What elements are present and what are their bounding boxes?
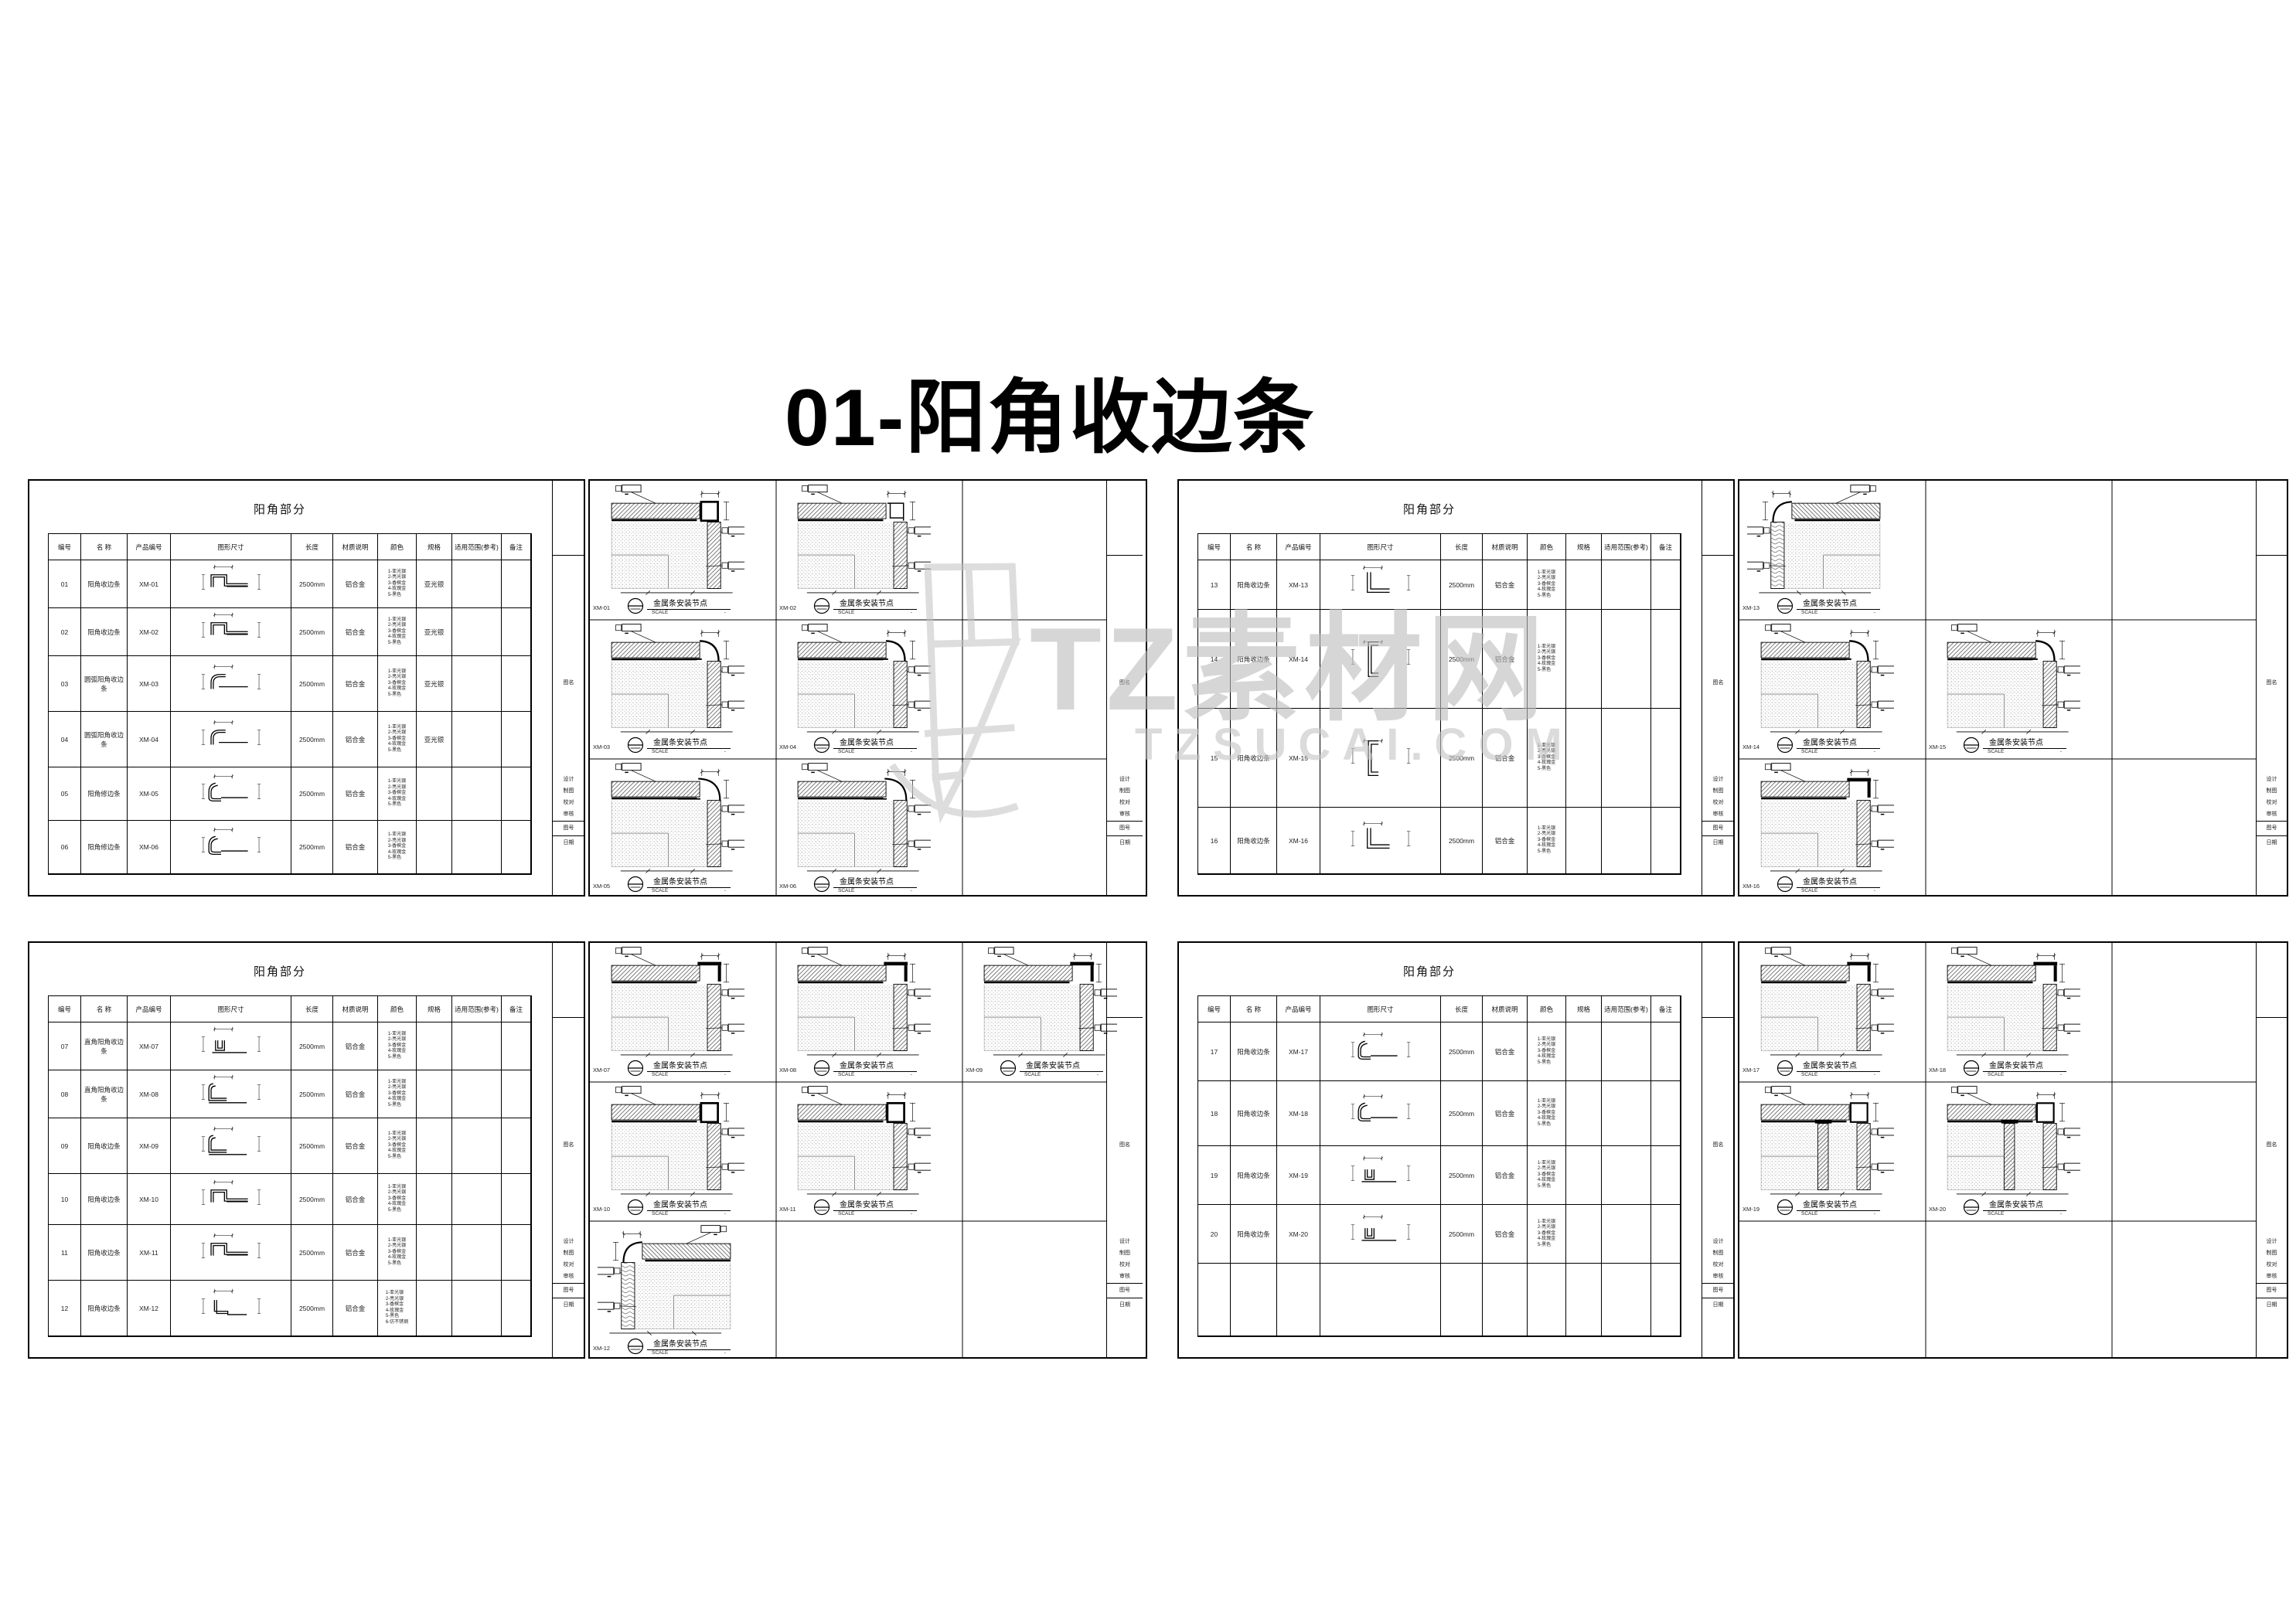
titleblock-no-label: 图号 <box>1702 1285 1734 1295</box>
table-header-cell: 产品编号 <box>128 534 171 560</box>
detail-code: XM-02 <box>779 604 813 611</box>
detail-bubble-icon <box>627 1199 644 1220</box>
detail-caption-text: 金属条安装节点SCALE- <box>647 1198 731 1216</box>
detail-caption-title: 金属条安装节点 <box>647 597 731 610</box>
detail-code: XM-05 <box>593 883 627 890</box>
titleblock-no-label: 图号 <box>1107 823 1143 833</box>
detail-code: XM-11 <box>779 1206 813 1213</box>
table-header-cell: 图形尺寸 <box>1320 996 1441 1022</box>
table-cell <box>502 712 531 767</box>
table-cell: 1-亚光银2-亮光银3-香槟金4-玫瑰金5-黑色 <box>1528 709 1566 808</box>
detail-cell <box>1933 621 2080 743</box>
titleblock-label: 制图 <box>553 786 584 796</box>
table-cell <box>1320 709 1441 808</box>
table-cell: 阳角修边条 <box>81 821 128 874</box>
table-cell: XM-17 <box>1277 1022 1320 1081</box>
detail-code: XM-01 <box>593 604 627 611</box>
table-cell: XM-05 <box>128 767 171 821</box>
detail-caption-title: 金属条安装节点 <box>1983 1198 2066 1211</box>
table-header-cell: 规格 <box>417 534 452 560</box>
table-cell <box>1651 1264 1681 1336</box>
table-cell: 铝合金 <box>333 1070 378 1118</box>
color-options: 1-亚光银2-亮光银3-香槟金4-玫瑰金5-黑色 <box>1538 826 1555 856</box>
detail-caption-scale: SCALE- <box>647 749 731 754</box>
table-cell <box>502 656 531 712</box>
detail-bubble-icon <box>627 876 644 897</box>
scale-label: SCALE <box>1988 1072 2004 1077</box>
table-header-cell: 备注 <box>502 996 531 1022</box>
table-cell <box>452 608 502 656</box>
table-cell: XM-19 <box>1277 1146 1320 1205</box>
titleblock-label: 设计 <box>1702 774 1734 784</box>
table-cell: 2500mm <box>291 608 333 656</box>
titleblock-no-label: 图号 <box>1702 823 1734 833</box>
table-header-cell: 颜色 <box>378 534 417 560</box>
table-header-cell: 产品编号 <box>1277 996 1320 1022</box>
table-cell <box>1566 709 1602 808</box>
profile-glyph <box>180 1229 282 1277</box>
scale-value: - <box>2060 1211 2062 1216</box>
table-cell <box>171 1281 291 1336</box>
titleblock-line <box>1702 1283 1734 1284</box>
table-cell <box>502 821 531 874</box>
detail-bubble-icon <box>627 1060 644 1080</box>
titleblock-line <box>553 1283 584 1284</box>
scale-value: - <box>724 888 726 893</box>
corner-detail-drawing <box>1933 621 2080 739</box>
titleblock-no-label: 图号 <box>2257 1285 2287 1295</box>
table-cell: 铝合金 <box>333 608 378 656</box>
titleblock-strip: 图名设计制图校对审核图号日期 <box>552 943 584 1357</box>
table-cell: XM-07 <box>128 1022 171 1070</box>
table-cell: 2500mm <box>291 1022 333 1070</box>
table-cell <box>1651 610 1681 709</box>
table-cell: 1-亚光银2-亮光银3-香槟金4-玫瑰金5-黑色 <box>378 1022 417 1070</box>
detail-caption: XM-03金属条安装节点SCALE- <box>593 736 772 757</box>
detail-cell <box>784 482 931 604</box>
table-header-cell: 长度 <box>1441 996 1483 1022</box>
corner-detail-drawing <box>598 944 744 1062</box>
detail-caption-title: 金属条安装节点 <box>1797 875 1880 888</box>
table-cell <box>1651 1146 1681 1205</box>
corner-trim-table: 编号名 称产品编号图形尺寸长度材质说明颜色规格适用范围(参考)备注13阳角收边条… <box>1197 533 1681 875</box>
table-cell <box>1602 808 1651 874</box>
titleblock-no-label: 图号 <box>553 823 584 833</box>
table-cell <box>417 821 452 874</box>
detail-caption-scale: SCALE- <box>647 1072 731 1077</box>
detail-caption-text: 金属条安装节点SCALE- <box>1020 1059 1103 1077</box>
table-cell: XM-08 <box>128 1070 171 1118</box>
profile-glyph <box>1330 1152 1432 1199</box>
detail-caption: XM-05金属条安装节点SCALE- <box>593 875 772 897</box>
table-cell <box>502 1070 531 1118</box>
table-cell <box>1602 610 1651 709</box>
detail-caption-text: 金属条安装节点SCALE- <box>1797 597 1880 615</box>
table-header-cell: 规格 <box>1566 534 1602 560</box>
detail-bubble-icon <box>627 597 644 618</box>
table-cell <box>1320 1146 1441 1205</box>
table-cell <box>1602 709 1651 808</box>
scale-label: SCALE <box>1801 610 1817 615</box>
detail-caption-title: 金属条安装节点 <box>833 736 917 749</box>
corner-detail-drawing <box>784 1084 931 1201</box>
table-cell: 铝合金 <box>333 821 378 874</box>
table-cell <box>502 1174 531 1225</box>
profile-glyph <box>180 560 282 608</box>
table-header-cell: 产品编号 <box>1277 534 1320 560</box>
detail-caption-text: 金属条安装节点SCALE- <box>833 1059 917 1077</box>
detail-cell <box>1747 944 1894 1066</box>
detail-bubble-icon <box>1777 1199 1794 1220</box>
detail-caption-title: 金属条安装节点 <box>647 1198 731 1211</box>
table-cell: 铝合金 <box>1483 808 1528 874</box>
scale-value: - <box>911 888 912 893</box>
table-cell: XM-15 <box>1277 709 1320 808</box>
table-cell: 铝合金 <box>333 712 378 767</box>
panel-title: 阳角部分 <box>254 501 306 517</box>
titleblock-strip: 图名设计制图校对审核图号日期 <box>1702 481 1734 895</box>
titleblock-label: 校对 <box>2257 1260 2287 1270</box>
detail-code: XM-15 <box>1929 743 1963 750</box>
table-cell: XM-13 <box>1277 560 1320 610</box>
table-cell <box>1441 1264 1483 1336</box>
table-cell <box>1602 1205 1651 1264</box>
table-cell <box>452 1070 502 1118</box>
table-cell: 06 <box>49 821 81 874</box>
table-header-cell: 颜色 <box>1528 996 1566 1022</box>
table-cell <box>171 608 291 656</box>
table-cell: 19 <box>1198 1146 1231 1205</box>
table-cell: 08 <box>49 1070 81 1118</box>
detail-caption-title: 金属条安装节点 <box>647 736 731 749</box>
profile-glyph <box>1330 561 1432 609</box>
table-cell: 1-亚光银2-亮光银3-香槟金4-玫瑰金5-黑色 <box>378 821 417 874</box>
table-cell: 1-亚光银2-亮光银3-香槟金4-玫瑰金5-黑色 <box>378 608 417 656</box>
profile-glyph <box>1330 817 1432 865</box>
profile-glyph <box>1330 734 1432 782</box>
table-sheet-top-right: 阳角部分编号名 称产品编号图形尺寸长度材质说明颜色规格适用范围(参考)备注13阳… <box>1177 479 1735 897</box>
table-cell: 14 <box>1198 610 1231 709</box>
table-cell: 05 <box>49 767 81 821</box>
table-cell: XM-11 <box>128 1225 171 1281</box>
table-cell: 1-亚光银2-亮光银3-香槟金4-玫瑰金5-黑色 <box>1528 1081 1566 1146</box>
table-header-cell: 长度 <box>291 996 333 1022</box>
table-cell: 1-亚光银2-亮光银3-香槟金4-玫瑰金5-黑色 <box>1528 808 1566 874</box>
titleblock-date-label: 日期 <box>2257 1300 2287 1310</box>
table-cell: 铝合金 <box>333 560 378 608</box>
table-header-cell: 材质说明 <box>333 534 378 560</box>
table-cell: 铝合金 <box>333 1118 378 1174</box>
scale-value: - <box>911 749 912 754</box>
table-cell <box>171 1174 291 1225</box>
table-cell <box>502 1022 531 1070</box>
titleblock-label: 制图 <box>1702 786 1734 796</box>
table-cell <box>1320 1205 1441 1264</box>
detail-caption-text: 金属条安装节点SCALE- <box>647 1059 731 1077</box>
scale-value: - <box>724 1072 726 1077</box>
table-cell <box>1566 808 1602 874</box>
detail-code: XM-10 <box>593 1206 627 1213</box>
table-cell: XM-03 <box>128 656 171 712</box>
detail-code: XM-20 <box>1929 1206 1963 1213</box>
table-header-cell: 适用范围(参考) <box>1602 534 1651 560</box>
titleblock-label: 校对 <box>553 798 584 808</box>
table-cell <box>1566 1022 1602 1081</box>
table-cell: 1-亚光银2-亮光银3-香槟金4-玫瑰金5-黑色6-仿不锈钢 <box>378 1281 417 1336</box>
detail-caption-title: 金属条安装节点 <box>1797 1059 1880 1072</box>
table-cell: 亚光银 <box>417 560 452 608</box>
color-options: 1-亚光银2-亮光银3-香槟金4-玫瑰金5-黑色 <box>388 1080 406 1109</box>
table-cell <box>1566 1205 1602 1264</box>
profile-glyph <box>1330 1028 1432 1076</box>
titleblock-top-line <box>2257 555 2287 556</box>
detail-code: XM-03 <box>593 743 627 750</box>
table-header-cell: 长度 <box>1441 534 1483 560</box>
detail-caption-text: 金属条安装节点SCALE- <box>833 597 917 615</box>
table-header-cell: 图形尺寸 <box>171 996 291 1022</box>
detail-cell <box>598 621 744 743</box>
table-cell: 2500mm <box>291 1281 333 1336</box>
detail-code: XM-08 <box>779 1067 813 1073</box>
table-cell <box>171 712 291 767</box>
table-cell <box>452 1225 502 1281</box>
titleblock-line <box>553 821 584 822</box>
color-options: 1-亚光银2-亮光银3-香槟金4-玫瑰金5-黑色 <box>388 669 406 699</box>
table-cell: 阳角收边条 <box>1231 560 1277 610</box>
scale-value: - <box>724 749 726 754</box>
table-cell <box>452 1118 502 1174</box>
detail-bubble-icon <box>813 597 830 618</box>
profile-glyph <box>1330 1210 1432 1258</box>
table-cell: 2500mm <box>1441 1022 1483 1081</box>
table-cell: 17 <box>1198 1022 1231 1081</box>
titleblock-label: 制图 <box>1702 1248 1734 1258</box>
titleblock-no-label: 图号 <box>553 1285 584 1295</box>
table-cell: XM-06 <box>128 821 171 874</box>
detail-caption-scale: SCALE- <box>647 610 731 615</box>
table-cell: 阳角收边条 <box>1231 610 1277 709</box>
table-cell <box>502 560 531 608</box>
titleblock-top-line <box>1107 555 1143 556</box>
detail-bubble-icon <box>1963 1199 1980 1220</box>
table-cell: 亚光银 <box>417 712 452 767</box>
titleblock-top-line <box>553 555 584 556</box>
table-cell: XM-09 <box>128 1118 171 1174</box>
detail-caption: XM-14金属条安装节点SCALE- <box>1742 736 1922 757</box>
detail-caption-title: 金属条安装节点 <box>647 875 731 888</box>
detail-caption: XM-01金属条安装节点SCALE- <box>593 597 772 618</box>
table-cell: 2500mm <box>291 1118 333 1174</box>
corner-detail-drawing <box>784 760 931 878</box>
detail-cell <box>784 1084 931 1205</box>
detail-cell <box>598 482 744 604</box>
detail-caption-scale: SCALE- <box>647 1350 731 1356</box>
table-cell <box>417 1174 452 1225</box>
table-header-cell: 编号 <box>49 996 81 1022</box>
table-cell: XM-14 <box>1277 610 1320 709</box>
detail-cell <box>784 760 931 882</box>
detail-cell <box>784 621 931 743</box>
corner-detail-drawing <box>598 760 744 878</box>
detail-caption: XM-19金属条安装节点SCALE- <box>1742 1198 1922 1220</box>
detail-caption: XM-18金属条安装节点SCALE- <box>1929 1059 2108 1080</box>
color-options: 1-亚光银2-亮光银3-香槟金4-玫瑰金5-黑色 <box>388 1131 406 1161</box>
detail-caption-scale: SCALE- <box>1797 610 1880 615</box>
table-cell <box>171 560 291 608</box>
titleblock-strip: 图名设计制图校对审核图号日期 <box>2256 943 2287 1357</box>
detail-caption-text: 金属条安装节点SCALE- <box>833 736 917 754</box>
table-sheet-top-left: 阳角部分编号名 称产品编号图形尺寸长度材质说明颜色规格适用范围(参考)备注01阳… <box>28 479 585 897</box>
table-cell <box>452 1281 502 1336</box>
drawing-canvas: 01-阳角收边条 TZ素材网 TZSUCAI.COM 阳角部分编号名 称产品编号… <box>0 0 2296 1623</box>
color-options: 1-亚光银2-亮光银3-香槟金4-玫瑰金5-黑色 <box>388 1238 406 1267</box>
detail-caption: XM-16金属条安装节点SCALE- <box>1742 875 1922 897</box>
table-cell: 1-亚光银2-亮光银3-香槟金4-玫瑰金5-黑色 <box>1528 1146 1566 1205</box>
titleblock-label: 审核 <box>1702 1271 1734 1281</box>
detail-caption: XM-17金属条安装节点SCALE- <box>1742 1059 1922 1080</box>
titleblock-label: 校对 <box>1107 1260 1143 1270</box>
table-cell: 阳角收边条 <box>81 1174 128 1225</box>
detail-caption-title: 金属条安装节点 <box>1020 1059 1103 1072</box>
table-cell: 01 <box>49 560 81 608</box>
profile-glyph <box>180 1176 282 1223</box>
table-cell: 18 <box>1198 1081 1231 1146</box>
table-cell: 1-亚光银2-亮光银3-香槟金4-玫瑰金5-黑色 <box>1528 1022 1566 1081</box>
table-cell: 阳角收边条 <box>1231 1081 1277 1146</box>
table-cell: XM-10 <box>128 1174 171 1225</box>
table-cell <box>171 1022 291 1070</box>
titleblock-no-label: 图号 <box>2257 823 2287 833</box>
titleblock-name-label: 图名 <box>1702 678 1734 688</box>
table-cell: 阳角收边条 <box>1231 1146 1277 1205</box>
titleblock-label: 制图 <box>553 1248 584 1258</box>
table-header-cell: 适用范围(参考) <box>452 534 502 560</box>
titleblock-line <box>1107 835 1143 836</box>
detail-caption-scale: SCALE- <box>1020 1072 1103 1077</box>
titleblock-no-label: 图号 <box>1107 1285 1143 1295</box>
table-cell: 铝合金 <box>1483 1205 1528 1264</box>
table-cell: 亚光银 <box>417 608 452 656</box>
scale-label: SCALE <box>1801 1072 1817 1077</box>
table-cell <box>1602 1146 1651 1205</box>
table-cell: 铝合金 <box>1483 560 1528 610</box>
table-cell <box>502 1281 531 1336</box>
detail-caption-scale: SCALE- <box>1983 1211 2066 1216</box>
color-options: 1-亚光银2-亮光银3-香槟金4-玫瑰金5-黑色 <box>1538 1099 1555 1128</box>
table-cell <box>417 767 452 821</box>
table-cell <box>1651 808 1681 874</box>
scale-label: SCALE <box>652 888 668 893</box>
table-cell: 11 <box>49 1225 81 1281</box>
scale-label: SCALE <box>652 749 668 754</box>
detail-caption-title: 金属条安装节点 <box>833 1059 917 1072</box>
table-cell <box>171 1118 291 1174</box>
page-title: 01-阳角收边条 <box>785 352 1315 468</box>
color-options: 1-亚光银2-亮光银3-香槟金4-玫瑰金5-黑色 <box>1538 1161 1555 1190</box>
titleblock-line <box>2257 1298 2287 1298</box>
titleblock-label: 制图 <box>2257 1248 2287 1258</box>
table-cell <box>1566 1146 1602 1205</box>
color-options: 1-亚光银2-亮光银3-香槟金4-玫瑰金5-黑色 <box>388 1032 406 1061</box>
table-cell: 铝合金 <box>1483 709 1528 808</box>
details-sheet-top-left: XM-01金属条安装节点SCALE-XM-02金属条安装节点SCALE-XM-0… <box>588 479 1147 897</box>
profile-glyph <box>1330 635 1432 683</box>
table-header-cell: 长度 <box>291 534 333 560</box>
table-cell: 1-亚光银2-亮光银3-香槟金4-玫瑰金5-黑色 <box>378 560 417 608</box>
detail-caption: XM-11金属条安装节点SCALE- <box>779 1198 959 1220</box>
table-cell <box>1651 1022 1681 1081</box>
table-cell: 铝合金 <box>333 1225 378 1281</box>
scale-value: - <box>724 1211 726 1216</box>
table-cell: XM-02 <box>128 608 171 656</box>
detail-cell <box>970 944 1117 1066</box>
detail-code: XM-17 <box>1742 1067 1777 1073</box>
titleblock-line <box>1107 1283 1143 1284</box>
detail-caption: XM-15金属条安装节点SCALE- <box>1929 736 2108 757</box>
table-header-cell: 规格 <box>417 996 452 1022</box>
detail-caption-title: 金属条安装节点 <box>1797 597 1880 610</box>
table-cell: 阳角修边条 <box>81 767 128 821</box>
corner-detail-drawing <box>1747 760 1894 878</box>
detail-bubble-icon <box>627 737 644 757</box>
table-cell <box>417 1118 452 1174</box>
profile-glyph <box>180 716 282 764</box>
table-header-cell: 材质说明 <box>1483 534 1528 560</box>
table-cell: 铝合金 <box>1483 610 1528 709</box>
table-cell: 2500mm <box>291 1225 333 1281</box>
table-cell: 2500mm <box>1441 1146 1483 1205</box>
titleblock-date-label: 日期 <box>1107 838 1143 848</box>
color-options: 1-亚光银2-亮光银3-香槟金4-玫瑰金5-黑色 <box>1538 1037 1555 1067</box>
corner-detail-drawing <box>1747 482 1894 600</box>
scale-value: - <box>724 1350 726 1356</box>
detail-caption-title: 金属条安装节点 <box>833 1198 917 1211</box>
table-cell: XM-12 <box>128 1281 171 1336</box>
detail-caption-title: 金属条安装节点 <box>647 1059 731 1072</box>
titleblock-strip: 图名设计制图校对审核图号日期 <box>1702 943 1734 1357</box>
titleblock-line <box>1702 1298 1734 1298</box>
corner-trim-table: 编号名 称产品编号图形尺寸长度材质说明颜色规格适用范围(参考)备注01阳角收边条… <box>48 533 532 875</box>
scale-value: - <box>724 610 726 615</box>
table-header-cell: 编号 <box>49 534 81 560</box>
scale-value: - <box>911 1211 912 1216</box>
table-cell <box>1651 709 1681 808</box>
table-cell: 16 <box>1198 808 1231 874</box>
table-header-cell: 适用范围(参考) <box>1602 996 1651 1022</box>
scale-label: SCALE <box>652 610 668 615</box>
profile-glyph <box>180 1022 282 1070</box>
detail-cell <box>1747 482 1894 604</box>
detail-caption-scale: SCALE- <box>833 888 917 893</box>
profile-glyph <box>180 1070 282 1118</box>
scale-label: SCALE <box>838 610 854 615</box>
titleblock-date-label: 日期 <box>1107 1300 1143 1310</box>
detail-cell <box>598 944 744 1066</box>
detail-caption-title: 金属条安装节点 <box>833 597 917 610</box>
titleblock-label: 设计 <box>1702 1237 1734 1247</box>
detail-caption-text: 金属条安装节点SCALE- <box>1797 1198 1880 1216</box>
table-cell: 直角阳角收边条 <box>81 1070 128 1118</box>
detail-caption: XM-12金属条安装节点SCALE- <box>593 1337 772 1359</box>
table-cell <box>1602 560 1651 610</box>
detail-caption-scale: SCALE- <box>1797 1072 1880 1077</box>
titleblock-strip: 图名设计制图校对审核图号日期 <box>1106 943 1143 1357</box>
table-cell: 1-亚光银2-亮光银3-香槟金4-玫瑰金5-黑色 <box>378 767 417 821</box>
table-cell: 2500mm <box>291 560 333 608</box>
titleblock-label: 审核 <box>1107 809 1143 819</box>
scale-label: SCALE <box>838 1211 854 1216</box>
table-header-cell: 颜色 <box>378 996 417 1022</box>
